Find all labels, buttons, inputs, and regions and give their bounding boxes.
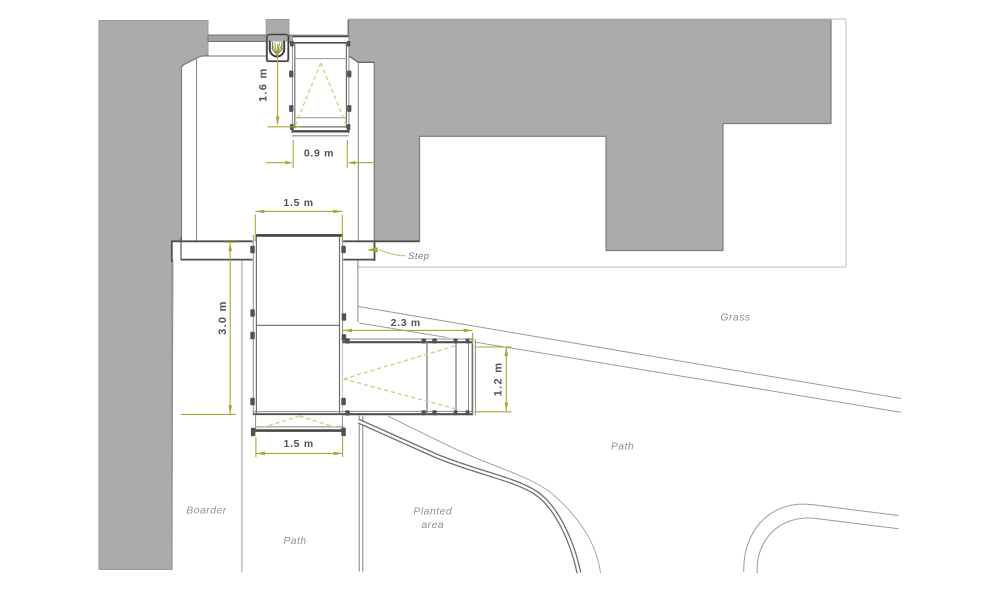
- svg-text:1.2 m: 1.2 m: [492, 362, 504, 397]
- svg-text:1.5 m: 1.5 m: [284, 438, 314, 450]
- svg-text:Boarder: Boarder: [186, 506, 227, 517]
- svg-text:Path: Path: [611, 441, 634, 452]
- svg-text:2.3 m: 2.3 m: [391, 317, 421, 329]
- svg-text:Path: Path: [283, 536, 306, 547]
- svg-text:1.6 m: 1.6 m: [257, 67, 269, 102]
- svg-text:Step: Step: [408, 251, 430, 262]
- svg-text:Grass: Grass: [720, 313, 750, 324]
- svg-text:3.0 m: 3.0 m: [217, 300, 229, 335]
- svg-text:1.5 m: 1.5 m: [283, 197, 313, 209]
- svg-text:Planted: Planted: [413, 507, 452, 518]
- svg-text:0.9 m: 0.9 m: [304, 148, 334, 160]
- svg-text:area: area: [421, 520, 444, 531]
